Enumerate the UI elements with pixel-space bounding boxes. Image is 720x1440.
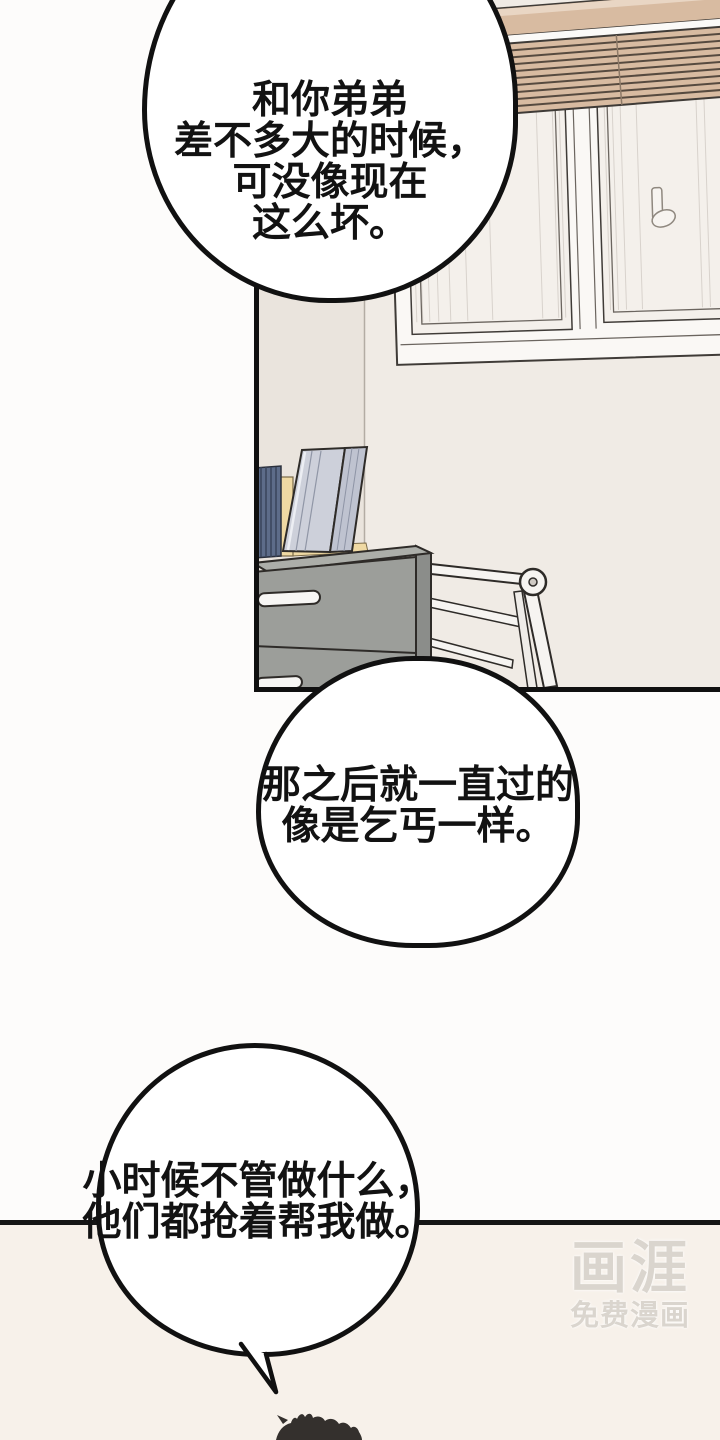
speech-line: 像是乞丐一样。 [241,806,595,847]
speech-line: 可没像现在 [127,162,533,203]
drawer-handle [258,590,321,606]
speech-line: 和你弟弟 [127,80,533,121]
comic-page: 和你弟弟 差不多大的时候， 可没像现在 这么坏。 那之后就一直过的 像是乞丐一样… [0,0,720,1440]
speech-line: 差不多大的时候， [127,121,533,162]
speech-line: 这么坏。 [127,203,533,244]
character-hair-spike [277,1415,288,1424]
speech-line: 那之后就一直过的 [241,765,595,806]
character-hair [276,1414,362,1440]
speech-text-2: 那之后就一直过的 像是乞丐一样。 [241,765,595,847]
watermark-logo: 画涯 [570,1238,690,1298]
speech-text-1: 和你弟弟 差不多大的时候， 可没像现在 这么坏。 [127,80,533,244]
speech-line: 小时候不管做什么， [81,1161,435,1202]
watermark: 画涯 免费漫画 [570,1238,690,1332]
speech-line: 他们都抢着帮我做。 [81,1202,435,1243]
speech-bubble-2: 那之后就一直过的 像是乞丐一样。 [256,656,580,948]
speech-text-3: 小时候不管做什么， 他们都抢着帮我做。 [81,1161,435,1243]
watermark-tagline: 免费漫画 [570,1300,690,1332]
